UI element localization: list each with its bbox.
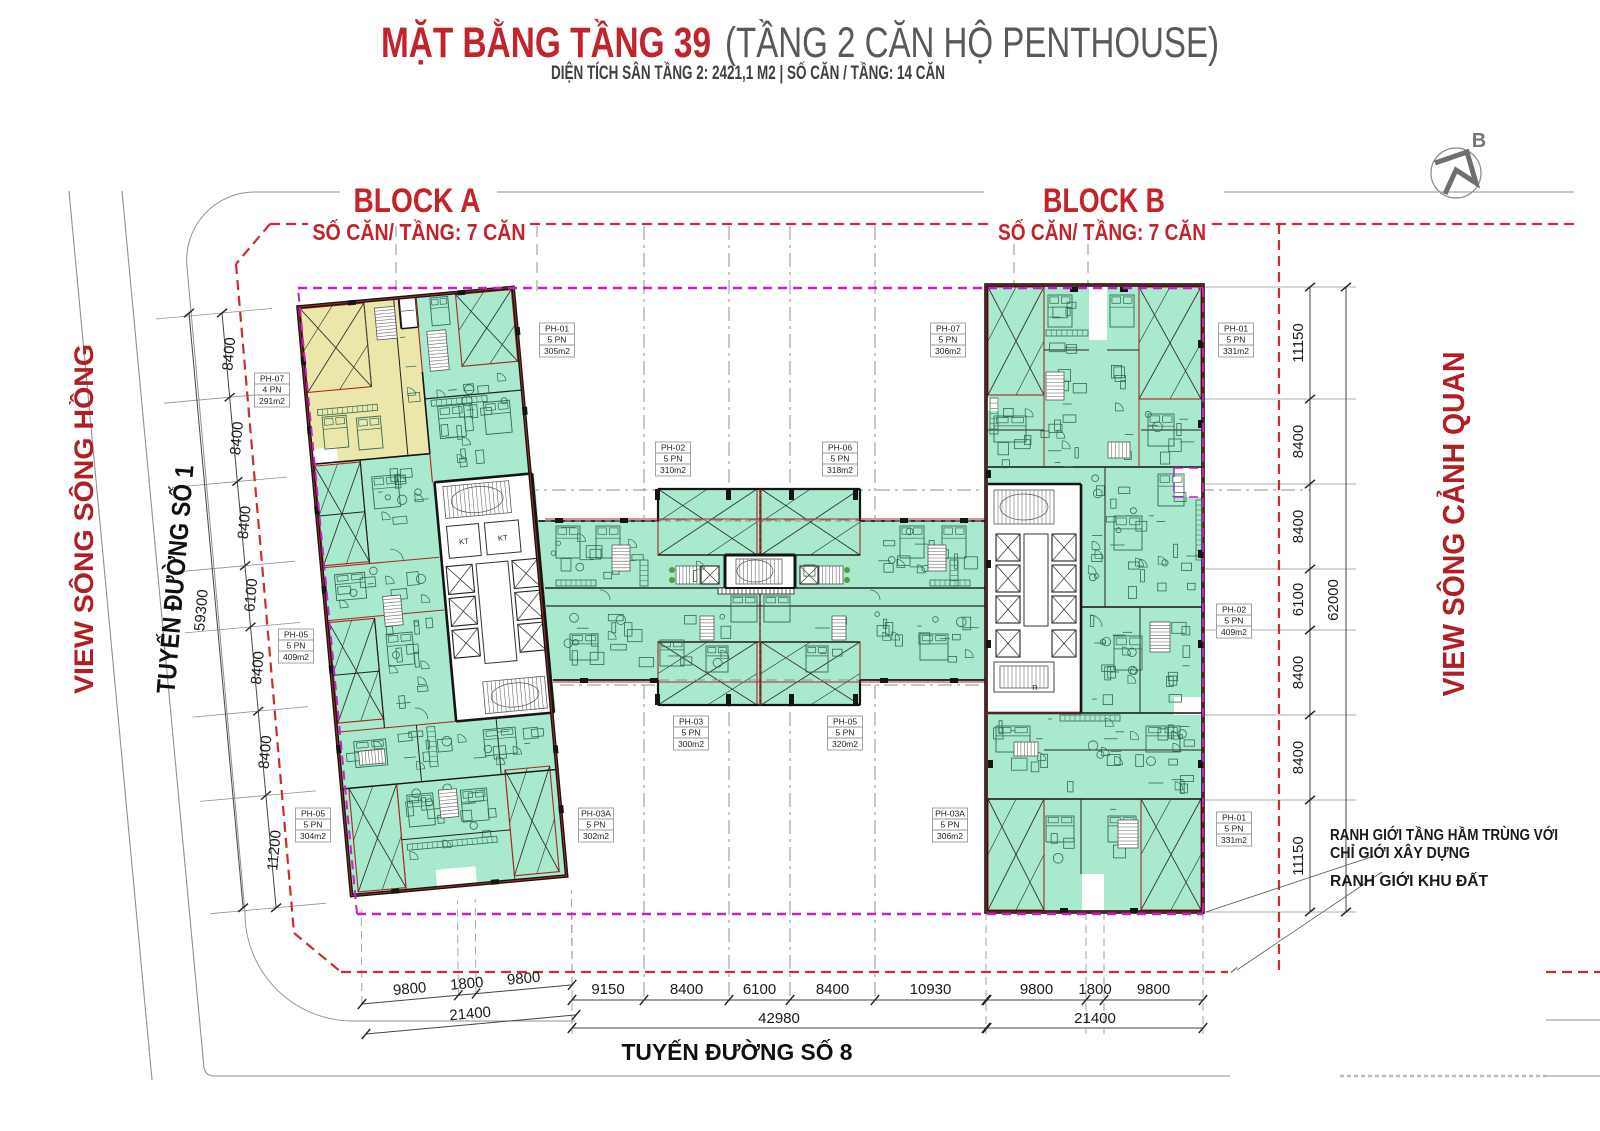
svg-text:5 PN: 5 PN bbox=[548, 335, 567, 345]
svg-text:1800: 1800 bbox=[1078, 981, 1111, 998]
svg-text:21400: 21400 bbox=[1074, 1010, 1116, 1027]
svg-text:R: R bbox=[1032, 683, 1038, 692]
svg-text:318m2: 318m2 bbox=[827, 465, 853, 475]
svg-text:6100: 6100 bbox=[743, 981, 776, 998]
svg-text:8400: 8400 bbox=[256, 735, 276, 770]
svg-text:5 PN: 5 PN bbox=[939, 335, 958, 345]
svg-text:5 PN: 5 PN bbox=[587, 820, 606, 830]
svg-text:VIEW SÔNG SÔNG HỒNG: VIEW SÔNG SÔNG HỒNG bbox=[68, 344, 99, 694]
svg-text:PH-01: PH-01 bbox=[545, 324, 569, 334]
svg-text:8400: 8400 bbox=[816, 981, 849, 998]
svg-text:PH-07: PH-07 bbox=[936, 324, 960, 334]
svg-text:9800: 9800 bbox=[1137, 981, 1170, 998]
svg-text:(TẦNG 2 CĂN HỘ PENTHOUSE): (TẦNG 2 CĂN HỘ PENTHOUSE) bbox=[725, 19, 1219, 67]
svg-text:B: B bbox=[1472, 130, 1486, 152]
svg-text:320m2: 320m2 bbox=[832, 739, 858, 749]
svg-text:8400: 8400 bbox=[1290, 656, 1307, 689]
svg-text:SỐ CĂN/ TẦNG: 7 CĂN: SỐ CĂN/ TẦNG: 7 CĂN bbox=[998, 218, 1206, 245]
svg-text:306m2: 306m2 bbox=[935, 346, 961, 356]
svg-text:8400: 8400 bbox=[227, 421, 247, 456]
svg-text:4 PN: 4 PN bbox=[263, 385, 282, 395]
svg-text:5 PN: 5 PN bbox=[287, 641, 306, 651]
svg-text:11150: 11150 bbox=[1290, 323, 1307, 363]
svg-text:331m2: 331m2 bbox=[1221, 835, 1247, 845]
svg-text:SỐ CĂN/ TẦNG: 7 CĂN: SỐ CĂN/ TẦNG: 7 CĂN bbox=[313, 218, 526, 245]
svg-text:TUYẾN ĐƯỜNG SỐ 8: TUYẾN ĐƯỜNG SỐ 8 bbox=[622, 1038, 853, 1065]
svg-text:300m2: 300m2 bbox=[678, 739, 704, 749]
svg-text:CHỈ GIỚI XÂY DỰNG: CHỈ GIỚI XÂY DỰNG bbox=[1330, 844, 1470, 862]
svg-text:8400: 8400 bbox=[670, 981, 703, 998]
svg-text:8400: 8400 bbox=[219, 337, 239, 372]
svg-text:6100: 6100 bbox=[241, 578, 261, 613]
svg-text:409m2: 409m2 bbox=[283, 652, 309, 662]
svg-text:9800: 9800 bbox=[1020, 981, 1053, 998]
svg-text:1800: 1800 bbox=[449, 974, 484, 994]
svg-text:PH-03A: PH-03A bbox=[581, 809, 611, 819]
svg-text:5 PN: 5 PN bbox=[941, 820, 960, 830]
svg-text:RANH GIỚI TẦNG HẦM TRÙNG VỚI: RANH GIỚI TẦNG HẦM TRÙNG VỚI bbox=[1330, 826, 1558, 844]
svg-text:9800: 9800 bbox=[506, 969, 541, 989]
svg-text:305m2: 305m2 bbox=[544, 346, 570, 356]
svg-text:5 PN: 5 PN bbox=[682, 728, 701, 738]
svg-text:304m2: 304m2 bbox=[300, 831, 326, 841]
svg-text:5 PN: 5 PN bbox=[1227, 335, 1246, 345]
svg-text:8400: 8400 bbox=[1290, 510, 1307, 543]
svg-text:5 PN: 5 PN bbox=[664, 454, 683, 464]
svg-text:8400: 8400 bbox=[1290, 425, 1307, 458]
svg-text:MẶT BẰNG TẦNG 39: MẶT BẰNG TẦNG 39 bbox=[381, 19, 711, 67]
svg-text:8400: 8400 bbox=[248, 651, 268, 686]
svg-text:331m2: 331m2 bbox=[1223, 346, 1249, 356]
svg-text:291m2: 291m2 bbox=[259, 396, 285, 406]
svg-text:VIEW SÔNG CẢNH QUAN: VIEW SÔNG CẢNH QUAN bbox=[1435, 352, 1471, 697]
svg-text:8400: 8400 bbox=[235, 505, 255, 540]
svg-text:PH-07: PH-07 bbox=[260, 374, 284, 384]
svg-text:PH-05: PH-05 bbox=[833, 717, 857, 727]
svg-text:11150: 11150 bbox=[1290, 836, 1307, 876]
svg-text:42980: 42980 bbox=[758, 1010, 800, 1027]
svg-text:KT: KT bbox=[459, 536, 470, 546]
svg-text:6100: 6100 bbox=[1290, 583, 1307, 616]
svg-text:5 PN: 5 PN bbox=[831, 454, 850, 464]
svg-text:10930: 10930 bbox=[910, 981, 952, 998]
svg-text:8400: 8400 bbox=[1290, 741, 1307, 774]
svg-text:PH-05: PH-05 bbox=[301, 809, 325, 819]
svg-text:310m2: 310m2 bbox=[660, 465, 686, 475]
svg-text:BLOCK B: BLOCK B bbox=[1043, 182, 1165, 220]
svg-text:5 PN: 5 PN bbox=[304, 820, 323, 830]
svg-text:9150: 9150 bbox=[591, 981, 624, 998]
svg-text:9800: 9800 bbox=[392, 979, 427, 999]
svg-text:PH-05: PH-05 bbox=[284, 630, 308, 640]
svg-text:PH-02: PH-02 bbox=[1222, 605, 1246, 615]
svg-text:RANH GIỚI KHU ĐẤT: RANH GIỚI KHU ĐẤT bbox=[1330, 872, 1489, 890]
svg-text:306m2: 306m2 bbox=[937, 831, 963, 841]
svg-text:5 PN: 5 PN bbox=[1225, 616, 1244, 626]
svg-text:5 PN: 5 PN bbox=[836, 728, 855, 738]
svg-text:BLOCK A: BLOCK A bbox=[354, 182, 481, 220]
svg-text:PH-01: PH-01 bbox=[1224, 324, 1248, 334]
svg-text:PH-01: PH-01 bbox=[1222, 813, 1246, 823]
svg-text:PH-02: PH-02 bbox=[661, 443, 685, 453]
svg-text:62000: 62000 bbox=[1325, 579, 1342, 621]
svg-text:409m2: 409m2 bbox=[1221, 627, 1247, 637]
svg-text:KT: KT bbox=[498, 533, 509, 543]
svg-text:5 PN: 5 PN bbox=[1225, 824, 1244, 834]
svg-text:DIỆN TÍCH SÂN TẦNG 2: 2421,1 M: DIỆN TÍCH SÂN TẦNG 2: 2421,1 M2 | SỐ CĂN… bbox=[551, 62, 945, 84]
svg-text:PH-03A: PH-03A bbox=[935, 809, 965, 819]
svg-text:PH-06: PH-06 bbox=[828, 443, 852, 453]
svg-text:302m2: 302m2 bbox=[583, 831, 609, 841]
svg-text:PH-03: PH-03 bbox=[679, 717, 703, 727]
